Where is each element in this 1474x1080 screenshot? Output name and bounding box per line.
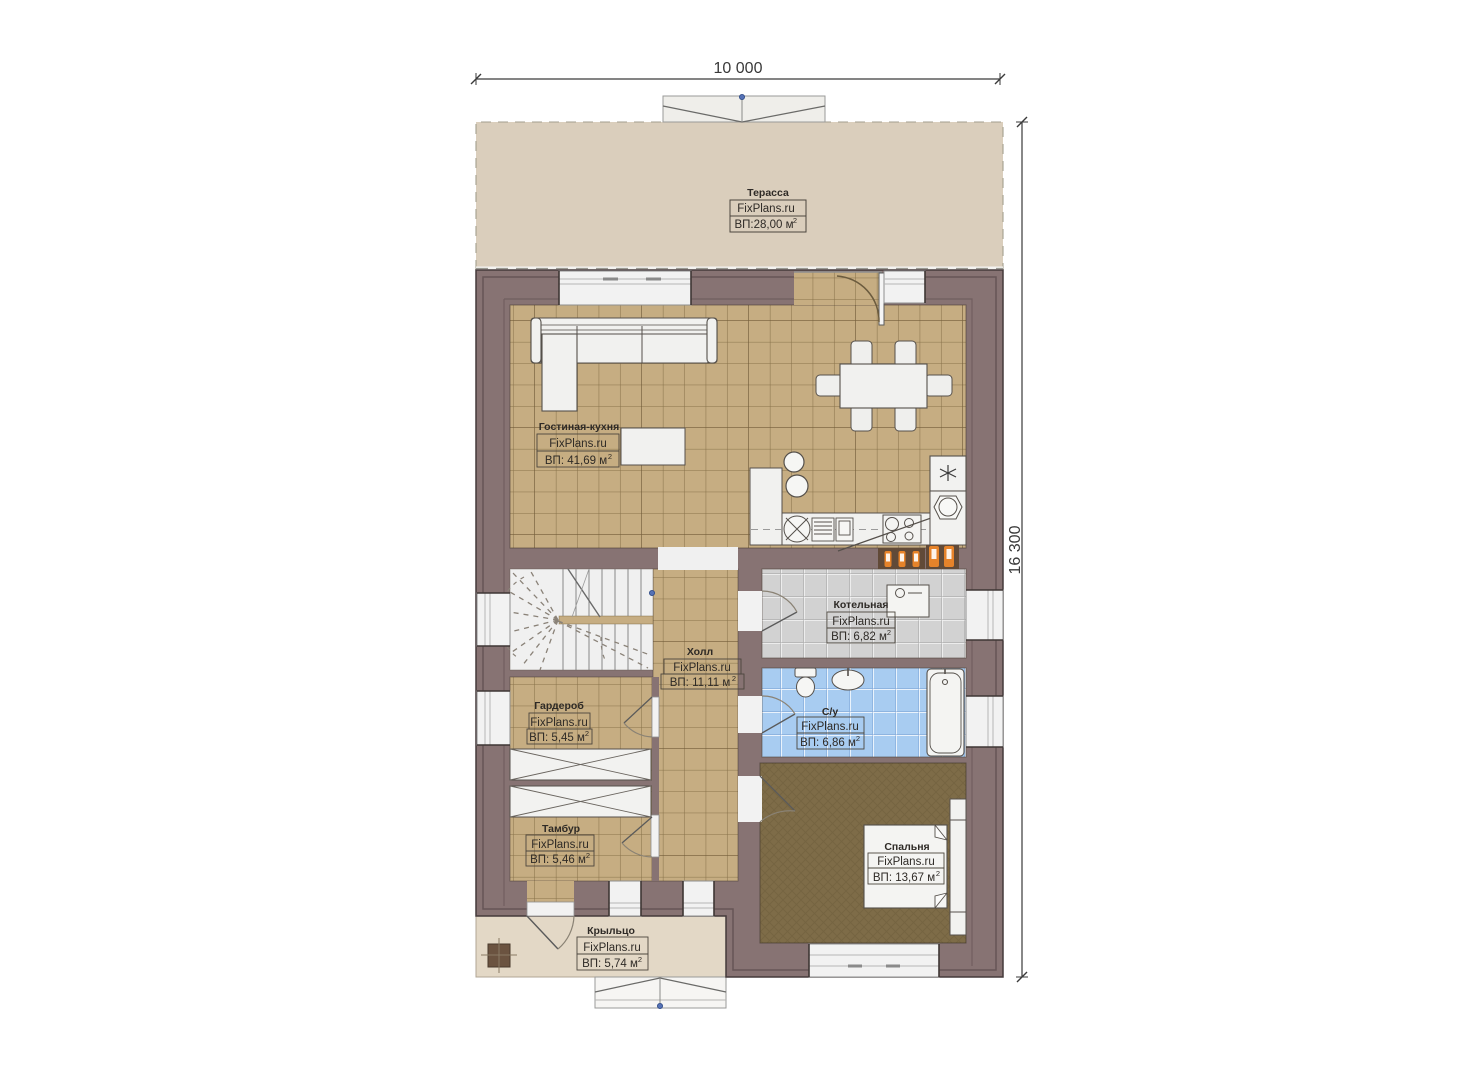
svg-text:2: 2: [585, 729, 589, 738]
svg-text:Холл: Холл: [687, 646, 713, 658]
svg-text:ВП:28,00 м: ВП:28,00 м: [734, 219, 793, 231]
svg-text:ВП: 13,67 м: ВП: 13,67 м: [873, 872, 935, 884]
svg-text:Терасса: Терасса: [747, 187, 789, 199]
svg-text:ВП: 6,86 м: ВП: 6,86 м: [800, 737, 856, 749]
svg-text:FixPlans.ru: FixPlans.ru: [673, 662, 731, 674]
svg-text:FixPlans.ru: FixPlans.ru: [801, 721, 859, 733]
svg-text:С/у: С/у: [822, 706, 839, 718]
svg-text:FixPlans.ru: FixPlans.ru: [583, 942, 641, 954]
svg-text:2: 2: [856, 734, 860, 743]
svg-text:ВП: 11,11 м: ВП: 11,11 м: [670, 677, 731, 689]
svg-text:2: 2: [936, 869, 940, 878]
svg-text:ВП: 5,45 м: ВП: 5,45 м: [529, 732, 585, 744]
svg-text:Тамбур: Тамбур: [542, 823, 580, 835]
svg-text:FixPlans.ru: FixPlans.ru: [531, 839, 589, 851]
svg-text:FixPlans.ru: FixPlans.ru: [877, 856, 935, 868]
svg-text:ВП: 6,82 м: ВП: 6,82 м: [831, 631, 887, 643]
svg-text:Гостиная-кухня: Гостиная-кухня: [539, 421, 619, 433]
svg-text:ВП: 5,46 м: ВП: 5,46 м: [530, 854, 586, 866]
svg-text:Котельная: Котельная: [834, 599, 889, 611]
svg-text:ВП: 41,69 м: ВП: 41,69 м: [545, 455, 607, 467]
svg-text:2: 2: [586, 851, 590, 860]
svg-text:2: 2: [608, 452, 612, 461]
svg-text:FixPlans.ru: FixPlans.ru: [832, 616, 890, 628]
svg-text:FixPlans.ru: FixPlans.ru: [530, 717, 588, 729]
svg-text:10 000: 10 000: [714, 60, 763, 77]
svg-text:2: 2: [732, 674, 736, 683]
svg-text:2: 2: [793, 216, 797, 225]
svg-text:FixPlans.ru: FixPlans.ru: [549, 438, 607, 450]
svg-text:Гардероб: Гардероб: [534, 700, 584, 712]
svg-text:Крыльцо: Крыльцо: [587, 925, 635, 937]
svg-text:FixPlans.ru: FixPlans.ru: [737, 203, 795, 215]
svg-text:ВП: 5,74 м: ВП: 5,74 м: [582, 958, 638, 970]
svg-text:Спальня: Спальня: [884, 841, 929, 853]
svg-text:2: 2: [638, 955, 642, 964]
svg-text:2: 2: [887, 628, 891, 637]
